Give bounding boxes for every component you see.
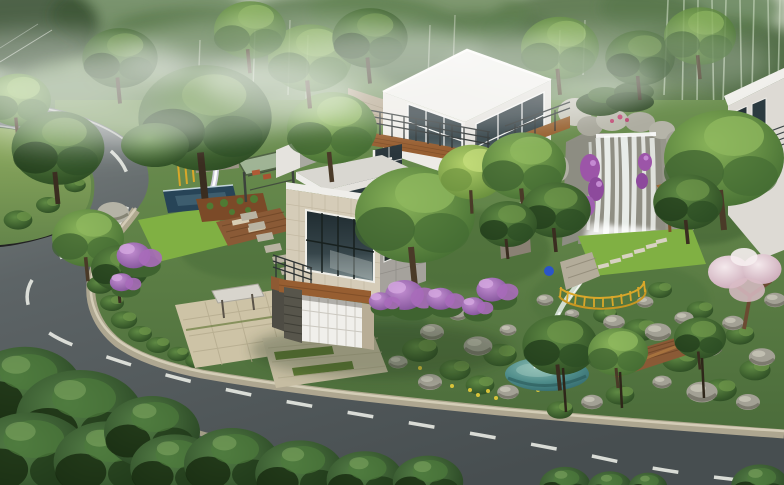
- stone-base-pillar: [272, 289, 286, 332]
- stacked-stone-pillar: [284, 287, 302, 343]
- garage: [279, 279, 374, 350]
- villa-rendering: [0, 0, 784, 485]
- rendering-canvas: [0, 0, 784, 485]
- waterfall-lip: [596, 134, 656, 136]
- bank-bush: [4, 210, 33, 229]
- blue-garden-ball: [544, 266, 554, 276]
